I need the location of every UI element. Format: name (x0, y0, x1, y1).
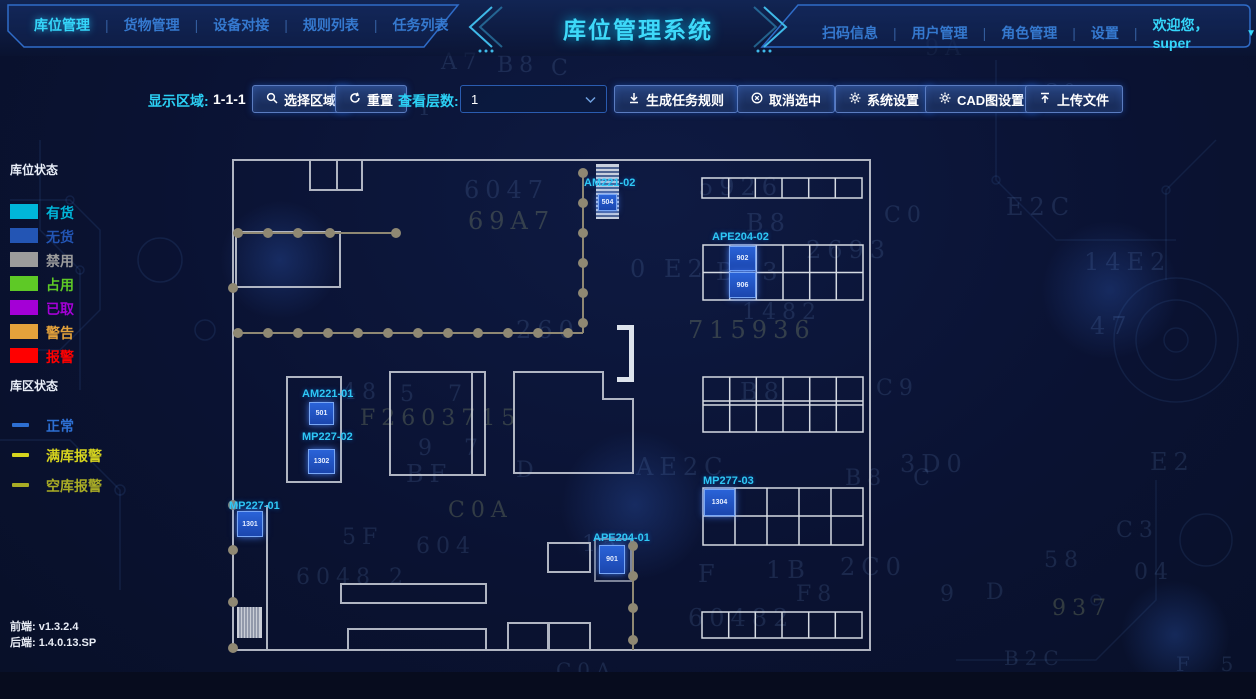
layer-select[interactable]: 1 (460, 85, 607, 113)
legend-swatch-disabled (10, 252, 38, 267)
bg-glyph: 14E2 (1084, 248, 1171, 276)
cancel-circle-icon (751, 92, 763, 107)
legend-dash-normal (12, 423, 29, 427)
download-icon (628, 92, 640, 107)
backend-version: 后端: 1.4.0.13.SP (10, 634, 96, 650)
search-icon (266, 92, 278, 107)
bg-glyph: C3 (1116, 518, 1159, 543)
system-settings-button[interactable]: 系统设置 (835, 85, 933, 113)
bg-glyph: 47 (1090, 312, 1133, 340)
nav-separator: | (195, 17, 199, 33)
storage-cell[interactable]: 1302 (308, 449, 335, 474)
storage-cell[interactable]: 901 (599, 545, 625, 574)
bg-glyph: B2C (1004, 646, 1065, 670)
nav-item-goods[interactable]: 货物管理 (124, 15, 180, 35)
legend-label-full-alarm: 满库报警 (46, 446, 102, 466)
storage-cell[interactable]: 504 (598, 194, 617, 211)
unit-label: APE204-01 (593, 532, 650, 544)
user-dropdown-icon: ▼ (1246, 28, 1256, 39)
legend-swatch-warning (10, 324, 38, 339)
nav-separator: | (1072, 25, 1076, 41)
legend-swatch-picked (10, 300, 38, 315)
secondary-nav: 扫码信息 | 用户管理 | 角色管理 | 设置 | 欢迎您，super ▼ (822, 15, 1256, 51)
unit-label: MP227-02 (302, 431, 353, 443)
legend-dash-full-alarm (12, 453, 29, 457)
bg-glyph: 3D0 (900, 450, 968, 478)
gear-icon (939, 92, 951, 107)
storage-cell[interactable]: 1301 (237, 511, 263, 537)
legend-swatch-stocked (10, 204, 38, 219)
storage-cell[interactable]: 501 (309, 402, 334, 425)
upload-file-label: 上传文件 (1057, 90, 1109, 109)
floorplan-canvas[interactable]: AM221-02 APE204-02 AM221-01 MP227-02 MP2… (228, 155, 876, 655)
bg-glyph: 9 (940, 582, 960, 607)
system-settings-label: 系统设置 (867, 90, 919, 109)
nav-item-rules[interactable]: 规则列表 (303, 15, 359, 35)
unit-label: MP277-03 (703, 475, 754, 487)
storage-cell[interactable]: 1304 (704, 489, 735, 516)
slot-status-title: 库位状态 (10, 161, 58, 178)
display-area-value: 1-1-1 (213, 91, 246, 107)
bg-glyph: C0 (884, 203, 927, 228)
bg-glyph: B8 (497, 53, 539, 78)
storage-cell[interactable]: 906 (729, 272, 756, 298)
legend-label-alarm: 报警 (46, 347, 74, 367)
nav-separator: | (1134, 25, 1138, 41)
gear-icon (849, 92, 861, 107)
legend-label-disabled: 禁用 (46, 251, 74, 271)
nav-separator: | (983, 25, 987, 41)
display-area-label: 显示区域: (148, 91, 209, 111)
legend-label-normal: 正常 (46, 416, 74, 436)
app-window: A7B8C9A1EC06047592669A7B8C0E2C26930E2BF3… (0, 0, 1256, 699)
nav-separator: | (284, 17, 288, 33)
reset-label: 重置 (367, 90, 393, 109)
bg-glyph: 04 (1134, 560, 1174, 585)
chevron-down-icon (585, 92, 596, 107)
legend-label-warning: 警告 (46, 323, 74, 343)
legend-label-empty: 无货 (46, 227, 74, 247)
legend-swatch-occupied (10, 276, 38, 291)
cancel-selection-label: 取消选中 (769, 90, 821, 109)
reset-button[interactable]: 重置 (335, 85, 407, 113)
cad-settings-button[interactable]: CAD图设置 (925, 85, 1038, 113)
bg-glyph: 937 (1052, 596, 1112, 621)
nav-item-tasks[interactable]: 任务列表 (393, 15, 449, 35)
legend-label-stocked: 有货 (46, 203, 74, 223)
generate-rule-label: 生成任务规则 (646, 90, 724, 109)
nav-item-settings[interactable]: 设置 (1091, 23, 1119, 43)
bg-glyph: C9 (876, 376, 919, 401)
cancel-selection-button[interactable]: 取消选中 (737, 85, 835, 113)
bg-glyph: C (551, 56, 574, 81)
nav-item-scan[interactable]: 扫码信息 (822, 23, 878, 43)
bg-glyph: E2C (1006, 193, 1075, 221)
bottom-band (0, 672, 1256, 699)
unit-label: APE204-02 (712, 231, 769, 243)
nav-separator: | (105, 17, 109, 33)
generate-rule-button[interactable]: 生成任务规则 (614, 85, 738, 113)
nav-item-users[interactable]: 用户管理 (912, 23, 968, 43)
select-area-label: 选择区域 (284, 90, 336, 109)
bg-glyph: D (986, 580, 1010, 605)
storage-cell[interactable]: 902 (729, 246, 756, 271)
nav-separator: | (374, 17, 378, 33)
view-layer-label: 查看层数: (398, 91, 459, 111)
cad-settings-label: CAD图设置 (957, 90, 1024, 109)
layer-select-value: 1 (471, 92, 478, 107)
main-nav: 库位管理 | 货物管理 | 设备对接 | 规则列表 | 任务列表 (34, 15, 449, 35)
unit-label: AM221-02 (584, 177, 635, 189)
area-status-title: 库区状态 (10, 377, 58, 394)
refresh-icon (349, 92, 361, 107)
legend-label-empty-alarm: 空库报警 (46, 476, 102, 496)
nav-item-roles[interactable]: 角色管理 (1001, 23, 1057, 43)
legend-swatch-empty (10, 228, 38, 243)
legend-label-picked: 已取 (46, 299, 74, 319)
nav-item-storage[interactable]: 库位管理 (34, 15, 90, 35)
welcome-text: 欢迎您，super (1153, 15, 1239, 51)
header: 库位管理 | 货物管理 | 设备对接 | 规则列表 | 任务列表 库位管理系统 … (0, 0, 1256, 56)
page-title: 库位管理系统 (548, 11, 728, 45)
upload-file-button[interactable]: 上传文件 (1025, 85, 1123, 113)
legend-label-occupied: 占用 (46, 275, 74, 295)
unit-label: AM221-01 (302, 388, 353, 400)
nav-item-device[interactable]: 设备对接 (213, 15, 269, 35)
nav-separator: | (893, 25, 897, 41)
upload-icon (1039, 92, 1051, 107)
user-menu[interactable]: 欢迎您，super ▼ (1153, 15, 1256, 51)
legend-dash-empty-alarm (12, 483, 29, 487)
bg-glyph: E2 (1150, 448, 1195, 476)
toolbar: 显示区域: 1-1-1 选择区域 重置 查看层数: 1 (0, 85, 1256, 115)
frontend-version: 前端: v1.3.2.4 (10, 618, 78, 634)
legend-swatch-alarm (10, 348, 38, 363)
bg-glyph: 58 (1044, 548, 1084, 573)
